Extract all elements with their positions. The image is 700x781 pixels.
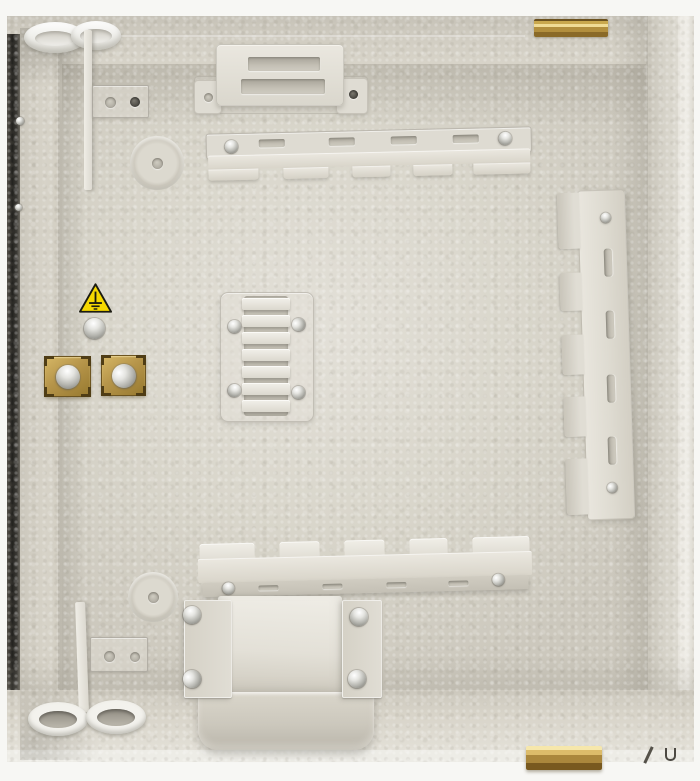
edge-screw — [16, 117, 24, 125]
clamp-tab — [101, 386, 111, 396]
comb-screw — [292, 386, 305, 399]
bracket-slot — [241, 79, 325, 94]
watermark-marks — [665, 748, 676, 761]
rail-tooth — [565, 458, 589, 515]
rail-slot — [608, 436, 617, 464]
rail-slot — [329, 137, 355, 146]
u-channel-bracket — [170, 592, 432, 756]
rail-slot — [259, 139, 285, 148]
grommet-bottom-1 — [28, 702, 88, 736]
clamp-screw — [52, 361, 85, 394]
clamp-tab — [136, 386, 146, 396]
rail-slot — [322, 584, 342, 589]
knockout-center-hole — [152, 158, 163, 169]
plate-hole — [130, 97, 140, 107]
right-wall-edge-highlight — [678, 16, 694, 762]
comb-rung — [242, 400, 290, 412]
comb-rung — [242, 332, 290, 344]
plate-hole — [104, 651, 115, 662]
hinge-bottom — [526, 746, 602, 770]
comb-rung — [242, 298, 290, 310]
photo-distribution-box-interior — [0, 0, 700, 781]
grommet-bore — [35, 31, 75, 46]
rail-screw — [491, 573, 505, 587]
rail-tooth — [559, 272, 582, 311]
top-wall-fold-highlight — [115, 35, 525, 37]
cable-rail-right — [557, 189, 639, 521]
rail-slot — [606, 310, 615, 338]
rail-slot — [448, 580, 468, 585]
grommet-bottom-2 — [86, 700, 146, 734]
u-channel-screw — [348, 670, 366, 688]
rail-screw — [599, 211, 612, 224]
rail-tooth — [283, 167, 328, 179]
bracket-slot — [248, 57, 320, 71]
brass-clamp-left — [44, 356, 91, 397]
rail-tooth — [413, 164, 452, 176]
clamp-tab — [136, 355, 146, 365]
brass-clamp-right — [101, 355, 146, 396]
rail-slot — [386, 582, 406, 587]
right-wall — [646, 16, 680, 762]
plate-two-holes-bottom — [90, 637, 148, 672]
clamp-tab — [44, 387, 54, 397]
rail-slot — [453, 135, 479, 144]
rail-screw — [606, 481, 618, 493]
grommet-bore — [97, 709, 134, 726]
rail-tooth — [563, 396, 586, 437]
clamp-tab — [101, 355, 111, 365]
rail-slot — [607, 374, 616, 402]
mounting-bracket-top — [194, 42, 368, 116]
grommet-top-2 — [71, 21, 121, 50]
rail-slot — [604, 249, 613, 277]
cable-rail-top — [205, 122, 532, 181]
rail-screw — [223, 139, 239, 155]
plate-hole — [105, 97, 116, 108]
grommet-bore — [39, 711, 76, 728]
rail-tooth — [557, 193, 581, 250]
comb-rung — [242, 315, 290, 327]
divider-strip-top — [84, 30, 92, 190]
rail-tooth — [352, 166, 390, 178]
ear-hole — [349, 90, 358, 99]
rail-tooth — [561, 334, 584, 375]
rail-slot — [258, 585, 278, 590]
comb-rung — [242, 366, 290, 378]
rail-tooth — [473, 162, 530, 174]
clamp-tab — [44, 356, 54, 366]
cable-comb-center — [220, 292, 314, 422]
clamp-tab — [81, 387, 91, 397]
earth-ground-warning-icon — [79, 283, 112, 313]
rail-slot — [391, 136, 417, 145]
left-edge-dark-return — [7, 34, 20, 762]
hinge-top — [534, 19, 608, 37]
rail-screw — [496, 129, 514, 147]
comb-rung — [242, 349, 290, 361]
knockout-top — [130, 136, 184, 190]
plate-two-holes-top — [92, 85, 149, 118]
ear-hole — [204, 93, 213, 102]
clamp-screw — [109, 361, 140, 392]
u-channel-bottom — [198, 692, 374, 750]
clamp-tab — [81, 356, 91, 366]
rail-tooth — [208, 169, 258, 181]
plate-hole — [130, 652, 140, 662]
bracket-body — [216, 44, 344, 106]
comb-rung — [242, 383, 290, 395]
knockout-center-hole — [148, 592, 159, 603]
u-channel-interior — [218, 596, 342, 698]
